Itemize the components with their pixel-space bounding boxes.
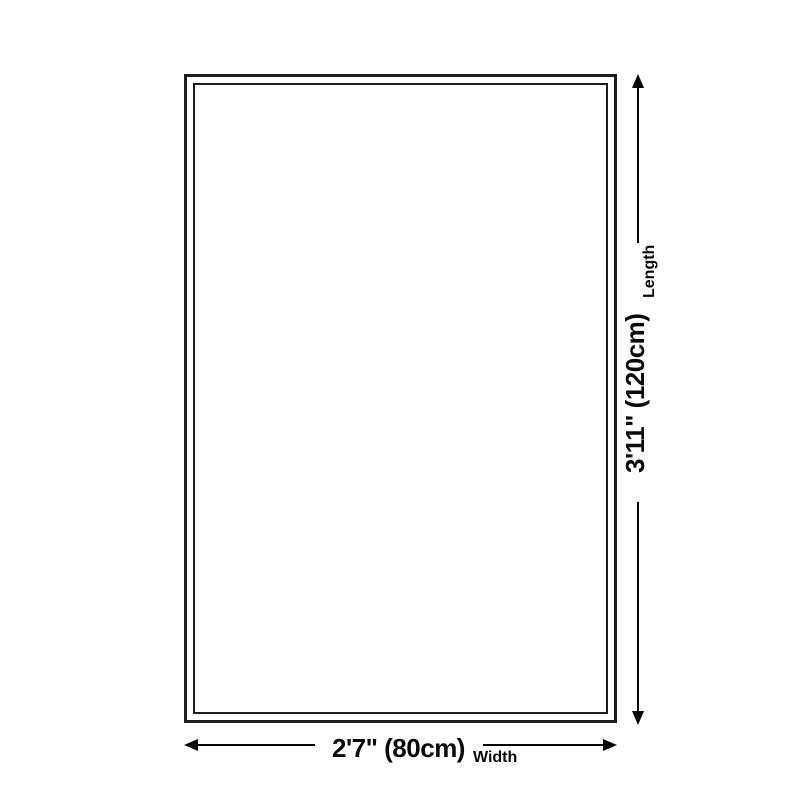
product-outline-inner	[193, 83, 608, 714]
arrow-down-icon	[632, 711, 644, 725]
arrow-left-icon	[184, 739, 198, 751]
width-label: Width	[473, 750, 517, 766]
arrow-up-icon	[632, 74, 644, 88]
width-arrow-line-right	[483, 744, 604, 746]
size-diagram: 3'11" (120cm) Length 2'7" (80cm) Width	[0, 0, 800, 800]
width-arrow-line-left	[197, 744, 315, 746]
length-arrow-line-top	[637, 87, 639, 243]
length-label: Length	[642, 245, 658, 298]
arrow-right-icon	[603, 739, 617, 751]
length-arrow-line-bottom	[637, 502, 639, 712]
product-outline-outer	[184, 74, 617, 723]
length-value: 3'11" (120cm)	[622, 314, 649, 473]
width-value: 2'7" (80cm)	[332, 735, 465, 762]
